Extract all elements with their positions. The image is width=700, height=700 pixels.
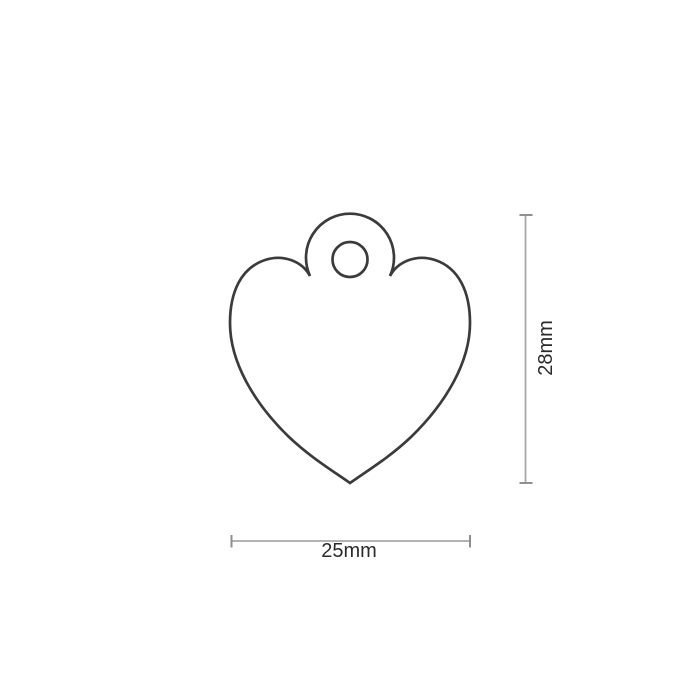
width-dimension-label: 25mm xyxy=(321,540,377,562)
diagram-canvas: 25mm 28mm xyxy=(0,0,700,700)
height-dimension-label: 28mm xyxy=(535,320,557,376)
height-dimension-line xyxy=(520,215,533,483)
tag-hole-icon xyxy=(333,242,368,277)
heart-tag-outline-icon xyxy=(230,214,470,483)
heart-tag-dimension-figure xyxy=(0,0,700,700)
